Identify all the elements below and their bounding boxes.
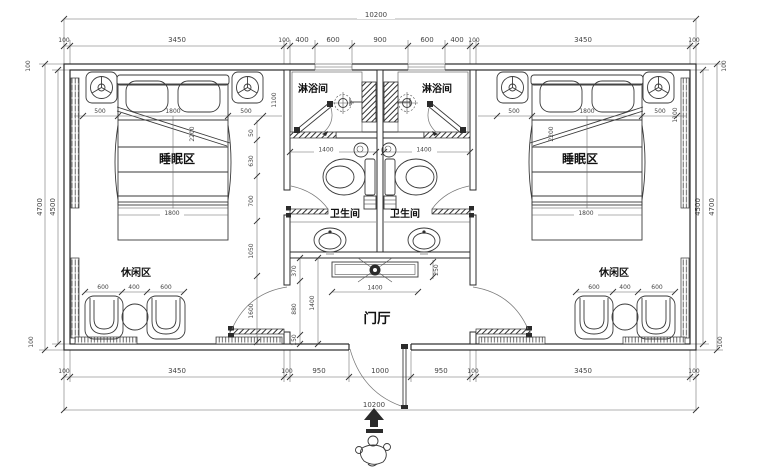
dim-bottom: 100 xyxy=(58,368,70,375)
dim-chair: 600 xyxy=(97,284,109,291)
dim-top: 100 xyxy=(688,37,700,44)
room-label-sleeping-left: 睡眠区 xyxy=(159,151,195,166)
side-table xyxy=(612,304,638,330)
dim-bed-width: 1800 xyxy=(165,108,180,115)
dim-top: 3450 xyxy=(574,36,592,44)
right-bedroom: 睡眠区 500 1800 500 1800 2200 1100 休闲区 600 … xyxy=(473,72,689,344)
dim-bed-side: 500 xyxy=(508,108,520,115)
shower-head xyxy=(396,92,418,114)
radiator xyxy=(681,258,689,338)
left-bedroom: 睡眠区 500 1800 500 1800 2200 1100 休闲区 600 … xyxy=(71,72,287,345)
dim-console-depth: 250 xyxy=(433,264,440,276)
door-left-bedroom xyxy=(228,287,287,338)
sink xyxy=(314,228,346,254)
dim-chain: 50 xyxy=(248,129,255,137)
dim-chair: 600 xyxy=(651,284,663,291)
toilet xyxy=(323,159,375,195)
room-label-shower-right: 淋浴间 xyxy=(422,82,452,95)
radiator xyxy=(479,337,545,344)
dim-bed-foot: 1800 xyxy=(578,210,593,217)
entry-person xyxy=(356,408,391,466)
dim-top: 400 xyxy=(450,36,463,44)
dim-bed-side: 500 xyxy=(240,108,252,115)
dimensions-bottom: 100 3450 100 950 1000 950 100 3450 100 1… xyxy=(58,350,700,413)
radiator xyxy=(71,78,79,208)
dim-right-outer: 4700 xyxy=(708,198,716,216)
dim-bottom: 3450 xyxy=(574,367,592,375)
dim-chain: 1050 xyxy=(248,243,255,258)
dim-top: 600 xyxy=(420,36,433,44)
dim-top: 400 xyxy=(295,36,308,44)
room-label-leisure-right: 休闲区 xyxy=(598,266,629,279)
dim-right-wall-bottom: 100 xyxy=(717,336,724,348)
nightstand-lamp xyxy=(497,72,528,103)
dim-hall-depth: 1400 xyxy=(309,295,316,310)
door-bathroom-right xyxy=(432,186,474,218)
dim-bed-diagonal: 2200 xyxy=(189,126,196,141)
dim-top: 100 xyxy=(278,37,290,44)
dim-left-inner: 4500 xyxy=(49,198,57,216)
nightstand-lamp xyxy=(86,72,117,103)
room-label-bathroom-right: 卫生间 xyxy=(390,207,420,220)
dim-right-wall-top: 100 xyxy=(721,60,728,72)
room-label-hall: 门厅 xyxy=(364,310,391,327)
floor-drain xyxy=(382,143,396,157)
armchair xyxy=(575,296,613,339)
dim-top: 100 xyxy=(58,37,70,44)
shower-head xyxy=(332,92,354,114)
dim-console-width: 1400 xyxy=(367,285,382,292)
dim-hall-seg1: 370 xyxy=(291,265,298,277)
dim-chair: 600 xyxy=(588,284,600,291)
radiator xyxy=(681,78,689,208)
dim-chain: 630 xyxy=(248,155,255,167)
dim-bottom: 1000 xyxy=(371,367,389,375)
toilet xyxy=(385,159,437,195)
floor-plan-drawing: 10200 100 3450 100 400 600 900 600 400 1… xyxy=(0,0,760,473)
armchair xyxy=(147,296,185,339)
floor-plan-canvas: 10200 100 3450 100 400 600 900 600 400 1… xyxy=(0,0,760,473)
room-label-bathroom-left: 卫生间 xyxy=(330,207,360,220)
armchair xyxy=(85,296,123,339)
dim-bed-width: 1800 xyxy=(579,108,594,115)
radiator xyxy=(623,337,685,344)
side-table xyxy=(122,304,148,330)
center-wall xyxy=(377,70,383,252)
plumbing-wall xyxy=(362,82,376,122)
dim-bed-diagonal: 2200 xyxy=(548,126,555,141)
dimensions-top: 10200 100 3450 100 400 600 900 600 400 1… xyxy=(58,9,700,64)
dim-bed-foot: 1800 xyxy=(164,210,179,217)
dim-top: 3450 xyxy=(168,36,186,44)
dim-hall-seg2: 880 xyxy=(291,303,298,315)
shower-door xyxy=(427,101,466,136)
dim-bottom: 100 xyxy=(281,368,293,375)
shower-door xyxy=(294,101,333,136)
dim-top: 900 xyxy=(373,36,386,44)
dim-overall-top: 10200 xyxy=(365,11,387,19)
dim-shower-width: 1400 xyxy=(318,147,333,154)
plumbing-wall xyxy=(384,82,398,122)
dim-bed-side: 500 xyxy=(654,108,666,115)
dim-chair: 600 xyxy=(160,284,172,291)
dim-table: 400 xyxy=(128,284,140,291)
radiator xyxy=(75,337,137,344)
dim-chain: 1600 xyxy=(248,303,255,318)
dim-chain: 700 xyxy=(248,195,255,207)
dim-shower-width: 1400 xyxy=(416,147,431,154)
dim-bottom: 100 xyxy=(688,368,700,375)
dim-top: 100 xyxy=(468,37,480,44)
dim-bed-side: 500 xyxy=(94,108,106,115)
dim-left-outer: 4700 xyxy=(36,198,44,216)
dim-nightstand: 1100 xyxy=(271,92,278,107)
dim-left-wall-bottom: 100 xyxy=(28,336,35,348)
dim-overall-bottom: 10200 xyxy=(363,401,385,409)
dim-bottom: 3450 xyxy=(168,367,186,375)
nightstand-lamp xyxy=(643,72,674,103)
dim-hall-seg3: 150 xyxy=(291,334,298,346)
radiator xyxy=(216,337,282,344)
nightstand-lamp xyxy=(232,72,263,103)
dimensions-left: 4700 4500 100 100 xyxy=(25,60,70,353)
door-bathroom-left xyxy=(286,186,328,218)
dim-bottom: 100 xyxy=(467,368,479,375)
dim-bottom: 950 xyxy=(434,367,447,375)
entry-arrow xyxy=(364,408,384,427)
dim-top: 600 xyxy=(326,36,339,44)
room-label-leisure-left: 休闲区 xyxy=(120,266,151,279)
floor-drain xyxy=(354,143,368,157)
room-label-shower-left: 淋浴间 xyxy=(298,82,328,95)
armchair xyxy=(637,296,675,339)
door-right-bedroom xyxy=(473,287,532,338)
dim-left-wall-top: 100 xyxy=(25,60,32,72)
sink xyxy=(408,228,440,254)
radiator xyxy=(71,258,79,338)
dim-table: 400 xyxy=(619,284,631,291)
dim-nightstand: 1100 xyxy=(672,107,679,122)
dim-right-inner: 4500 xyxy=(694,198,702,216)
dim-bottom: 950 xyxy=(312,367,325,375)
room-label-sleeping-right: 睡眠区 xyxy=(562,151,598,166)
building-walls xyxy=(64,63,696,352)
